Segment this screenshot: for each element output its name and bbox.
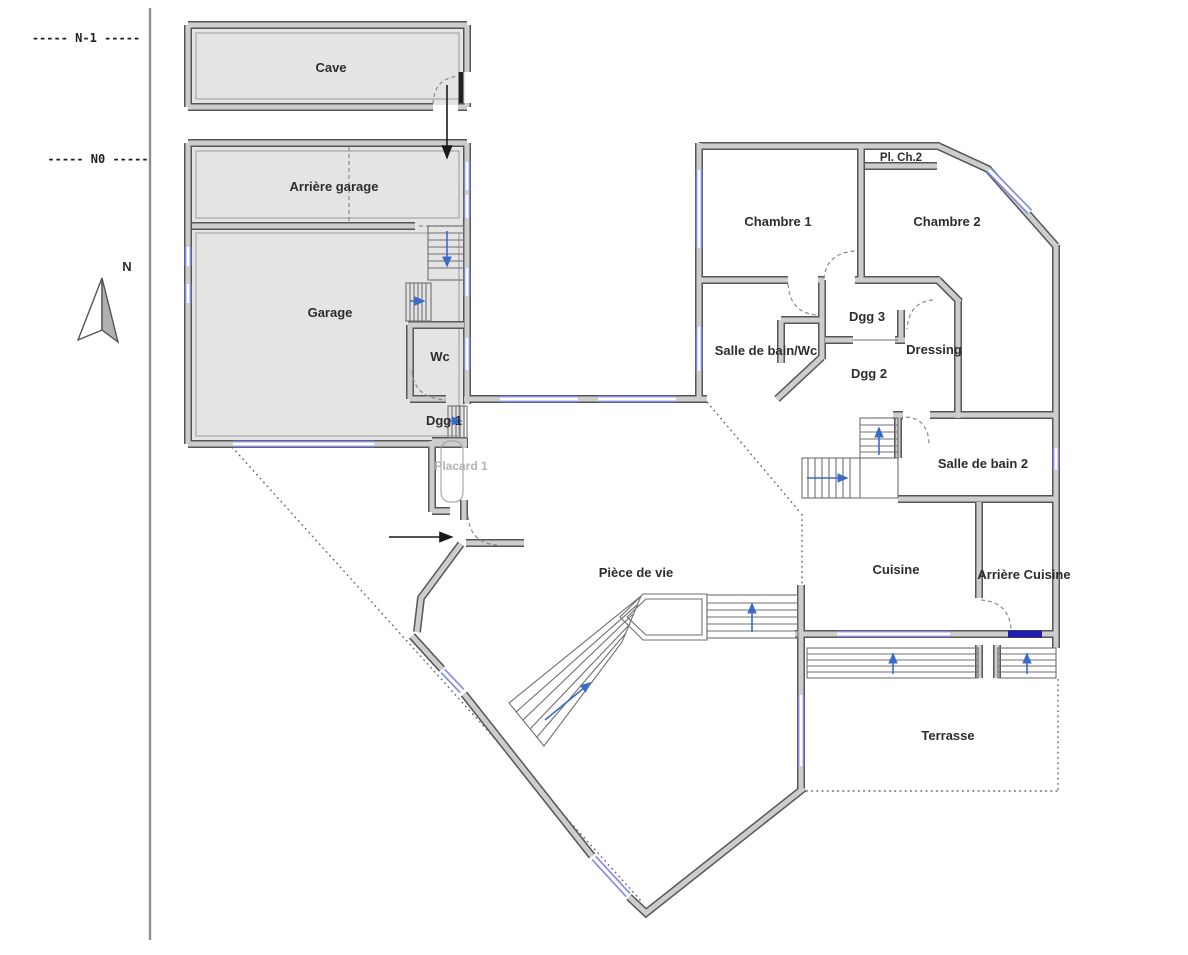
terrasse-steps [807,648,1056,678]
room-label-dgg1: Dgg 1 [426,413,462,428]
arriere-cuisine-glazed-door [1008,631,1042,638]
open-boundary-dotted-lines [232,402,1058,903]
room-label-pl-ch2: Pl. Ch.2 [880,152,922,164]
stair-direction-arrows [410,231,1027,720]
stair-piece-de-vie-diagonal-flight [509,596,641,746]
room-label-salle-de-bain-2: Salle de bain 2 [938,456,1028,471]
room-label-dgg3: Dgg 3 [849,309,885,324]
floor-plan-drawing: N ----- N-1 ----- ----- N0 ----- Cave Ar… [0,0,1188,955]
room-label-dgg2: Dgg 2 [851,366,887,381]
stair-landing-pentagon [620,594,707,640]
room-label-placard1: Placard 1 [434,459,488,473]
room-label-salle-de-bain-wc: Salle de bain/Wc [715,343,818,358]
room-label-terrasse: Terrasse [921,728,974,743]
room-label-chambre1: Chambre 1 [744,214,811,229]
north-arrow-icon [78,278,118,342]
room-label-garage: Garage [308,305,353,320]
level-marker-n-1: ----- N-1 ----- [32,31,140,45]
room-label-arriere-cuisine: Arrière Cuisine [977,567,1070,582]
room-label-arriere-garage: Arrière garage [290,179,379,194]
room-label-dressing: Dressing [906,342,962,357]
room-label-cuisine: Cuisine [873,562,920,577]
floor-plan-canvas: N ----- N-1 ----- ----- N0 ----- Cave Ar… [0,0,1188,955]
cave-door-leaf [459,72,464,103]
room-label-piece-de-vie: Pièce de vie [599,565,673,580]
level-marker-n0: ----- N0 ----- [47,152,148,166]
room-label-chambre2: Chambre 2 [913,214,980,229]
room-label-cave: Cave [315,60,346,75]
compass-north-label: N [122,259,131,274]
room-fills [190,27,465,442]
room-label-wc: Wc [430,349,450,364]
